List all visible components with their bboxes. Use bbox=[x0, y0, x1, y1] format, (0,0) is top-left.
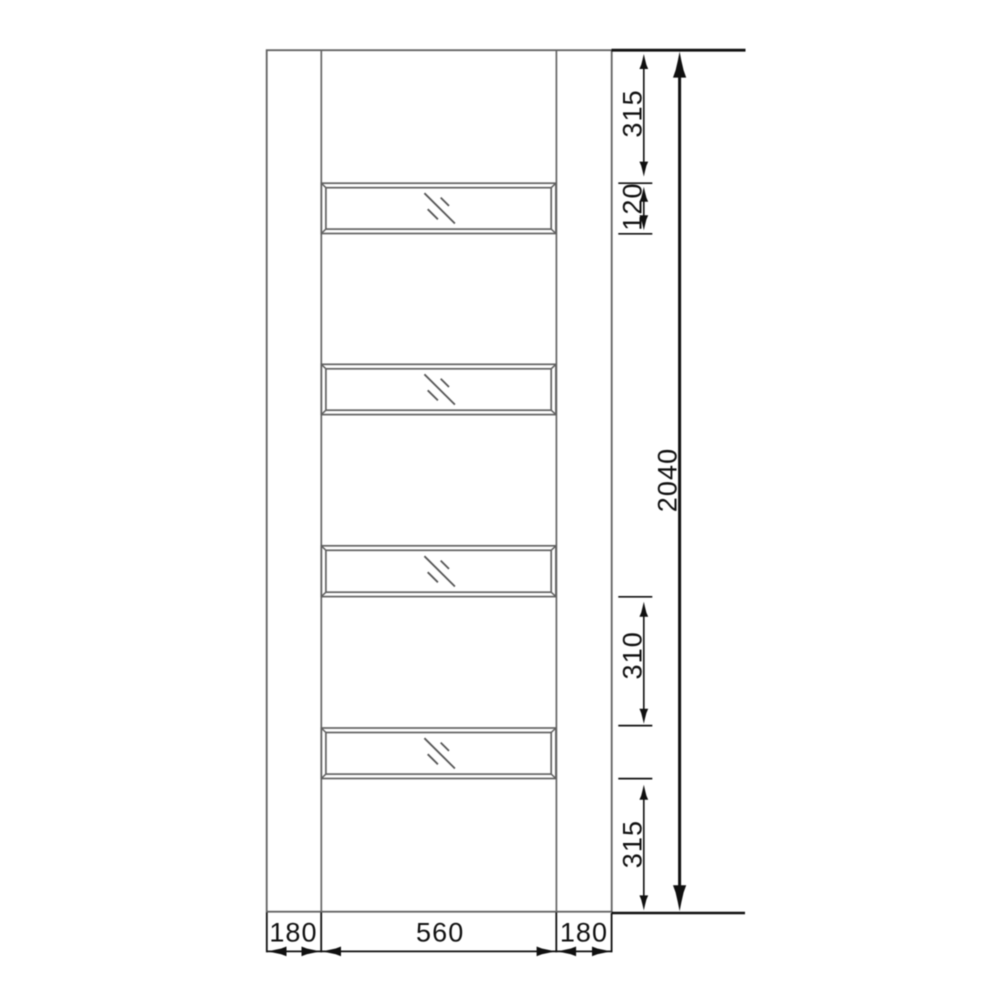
svg-text:2040: 2040 bbox=[653, 448, 683, 512]
svg-text:315: 315 bbox=[618, 89, 648, 137]
svg-text:310: 310 bbox=[618, 631, 648, 679]
svg-text:180: 180 bbox=[269, 918, 317, 948]
svg-text:180: 180 bbox=[560, 918, 608, 948]
svg-text:560: 560 bbox=[416, 918, 464, 948]
svg-text:315: 315 bbox=[618, 820, 648, 868]
svg-text:120: 120 bbox=[618, 182, 648, 230]
